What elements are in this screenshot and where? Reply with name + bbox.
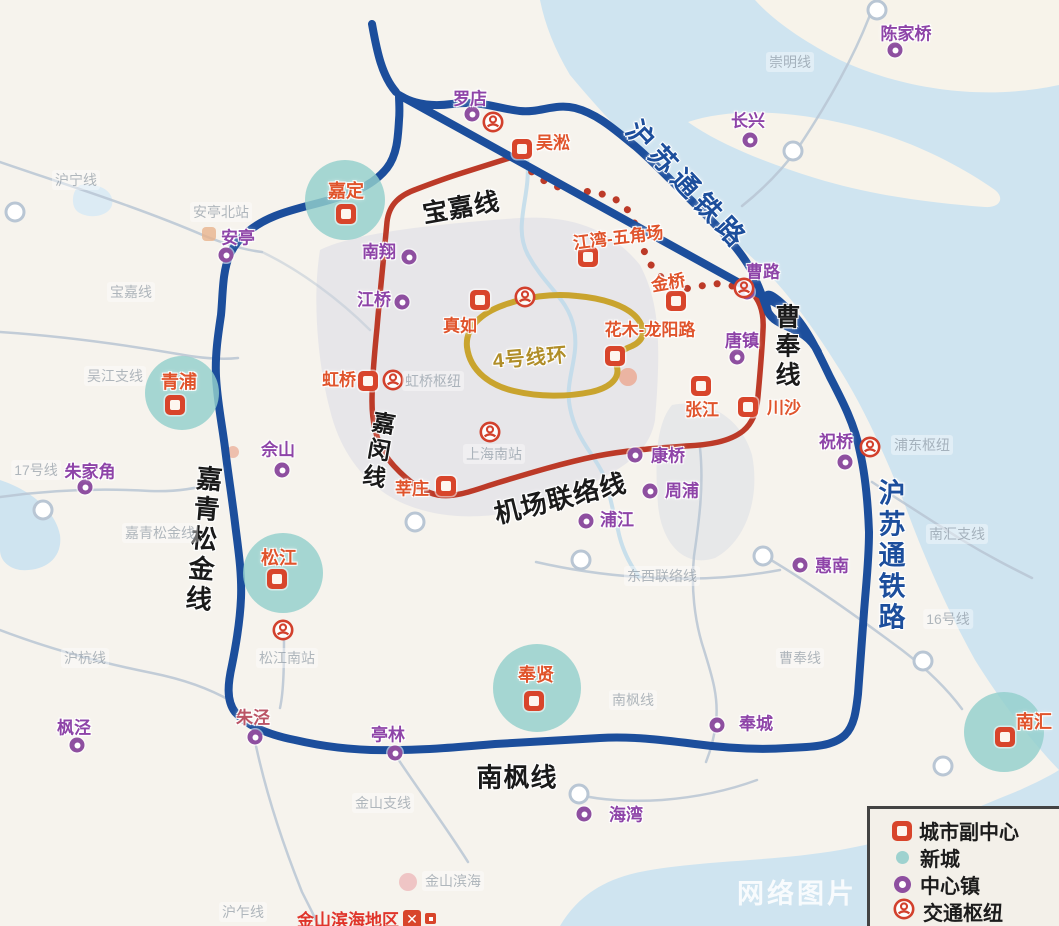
faint-rail-label: 宝嘉线 [107,282,155,302]
legend-label: 城市副中心 [919,816,1019,845]
sub-center-icon [512,139,532,159]
town-marker [248,730,263,745]
town-marker [579,514,594,529]
town-label: 江桥 [357,286,391,311]
rail-hub-icon [732,276,756,300]
region-label-jinshan-binhai: 金山滨海地区 ✕ [297,906,436,926]
town-marker [395,295,410,310]
faint-rail-label: 南汇支线 [926,524,988,544]
new-city-legend-icon [896,851,909,864]
sub-center-icon [267,569,287,589]
legend: 城市副中心 新城 中心镇 交通枢纽 [867,806,1059,926]
sub-center-icon [436,476,456,496]
sub-center-legend-icon [892,821,912,841]
faint-rail-label: 东西联络线 [624,566,700,586]
sub-center-icon [691,376,711,396]
town-marker [275,463,290,478]
town-label: 康桥 [651,442,685,467]
sub-center-icon [666,291,686,311]
sub-center-icon [524,691,544,711]
town-marker [402,250,417,265]
rail-hub-icon [271,618,295,642]
faint-rail-label: 沪宁线 [52,170,100,190]
line-name-label: 4号线环 [491,338,568,373]
new-city-label: 奉贤 [518,661,554,687]
town-label: 朱泾 [236,704,270,729]
town-legend-icon [894,876,911,893]
legend-row-new-city: 新城 [892,844,1059,871]
legend-row-sub-center: 城市副中心 [892,817,1059,844]
sub-center-label: 虹桥 [322,366,356,391]
legend-label: 中心镇 [920,870,980,899]
town-marker [838,455,853,470]
town-marker [793,558,808,573]
faint-rail-label: 17号线 [11,460,61,480]
town-label: 罗店 [453,85,487,110]
sub-center-label: 莘庄 [395,475,429,500]
legend-row-hub: 交通枢纽 [892,898,1059,925]
sub-center-label: 江湾-五角场 [571,218,664,254]
legend-label: 新城 [920,843,960,872]
town-marker [577,807,592,822]
town-label: 周浦 [665,477,699,502]
markers-layer: 罗店安亭南翔江桥佘山朱家角长兴陈家桥曹路唐镇康桥周浦浦江祝桥惠南奉城海湾亭林枫泾… [0,0,1059,926]
line-name-label: 沪苏通铁路 [871,479,910,634]
town-label: 南翔 [362,238,396,263]
sub-center-icon [165,395,185,415]
town-marker [219,248,234,263]
rail-hub-icon [478,420,502,444]
town-label: 安亭 [221,224,255,249]
town-label: 亭林 [371,721,405,746]
faint-rail-label: 安亭北站 [190,202,252,222]
sub-center-icon [470,290,490,310]
faint-rail-label: 金山支线 [352,793,414,813]
town-label: 佘山 [261,436,295,461]
town-marker [70,738,85,753]
town-marker [628,448,643,463]
town-label: 海湾 [609,801,643,826]
town-marker [388,746,403,761]
faint-rail-label: 崇明线 [766,52,814,72]
faint-rail-label: 浦东枢纽 [891,435,953,455]
sub-center-icon [738,397,758,417]
crossed-box-icon: ✕ [403,910,421,926]
new-city-circle [493,644,581,732]
faint-rail-label: 沪杭线 [61,648,109,668]
sub-center-label: 花木-龙阳路 [605,316,696,341]
new-city-label: 嘉定 [328,177,364,203]
town-label: 浦江 [600,506,634,531]
rail-hub-icon [481,110,505,134]
town-marker [730,350,745,365]
town-label: 奉城 [739,710,773,735]
line-name-label: 宝嘉线 [419,181,502,230]
town-label: 朱家角 [65,458,116,483]
faint-rail-label: 曹奉线 [776,648,824,668]
faint-rail-label: 虹桥枢纽 [402,371,464,391]
town-marker [643,484,658,499]
sub-center-icon [358,371,378,391]
rail-hub-icon [858,435,882,459]
town-marker [743,133,758,148]
watermark: 网络图片 [737,872,857,911]
sub-center-icon [336,204,356,224]
rail-hub-icon [513,285,537,309]
sub-center-icon [995,727,1015,747]
town-label: 长兴 [731,107,765,132]
sub-center-label: 张江 [685,396,719,421]
sub-center-label: 吴淞 [536,129,570,154]
town-label: 惠南 [815,552,849,577]
legend-row-town: 中心镇 [892,871,1059,898]
faint-rail-label: 沪乍线 [219,902,267,922]
small-square-icon [425,913,436,924]
town-label: 陈家桥 [881,20,932,45]
line-name-label: 曹奉线 [768,304,804,391]
legend-label: 交通枢纽 [923,897,1003,926]
sub-center-label: 真如 [443,312,477,337]
faint-rail-label: 松江南站 [256,648,318,668]
new-city-label: 松江 [261,544,297,570]
sub-center-icon [605,346,625,366]
town-label: 唐镇 [725,327,759,352]
faint-rail-label: 16号线 [923,609,973,629]
line-name-label: 南枫线 [476,758,557,795]
faint-rail-label: 金山滨海 [422,871,484,891]
region-label-text: 金山滨海地区 [297,906,399,926]
line-name-label: 嘉闵线 [353,408,401,494]
town-marker [710,718,725,733]
town-marker [888,43,903,58]
new-city-label: 南汇 [1016,708,1052,734]
faint-rail-label: 上海南站 [463,444,525,464]
faint-rail-label: 嘉青松金线 [122,523,198,543]
hub-legend-icon [892,897,916,926]
town-label: 枫泾 [57,714,91,739]
new-city-label: 青浦 [161,368,197,394]
transit-map: 罗店安亭南翔江桥佘山朱家角长兴陈家桥曹路唐镇康桥周浦浦江祝桥惠南奉城海湾亭林枫泾… [0,0,1059,926]
faint-rail-label: 吴江支线 [84,366,146,386]
faint-rail-label: 南枫线 [609,690,657,710]
sub-center-label: 川沙 [767,394,801,419]
town-label: 祝桥 [819,428,853,453]
